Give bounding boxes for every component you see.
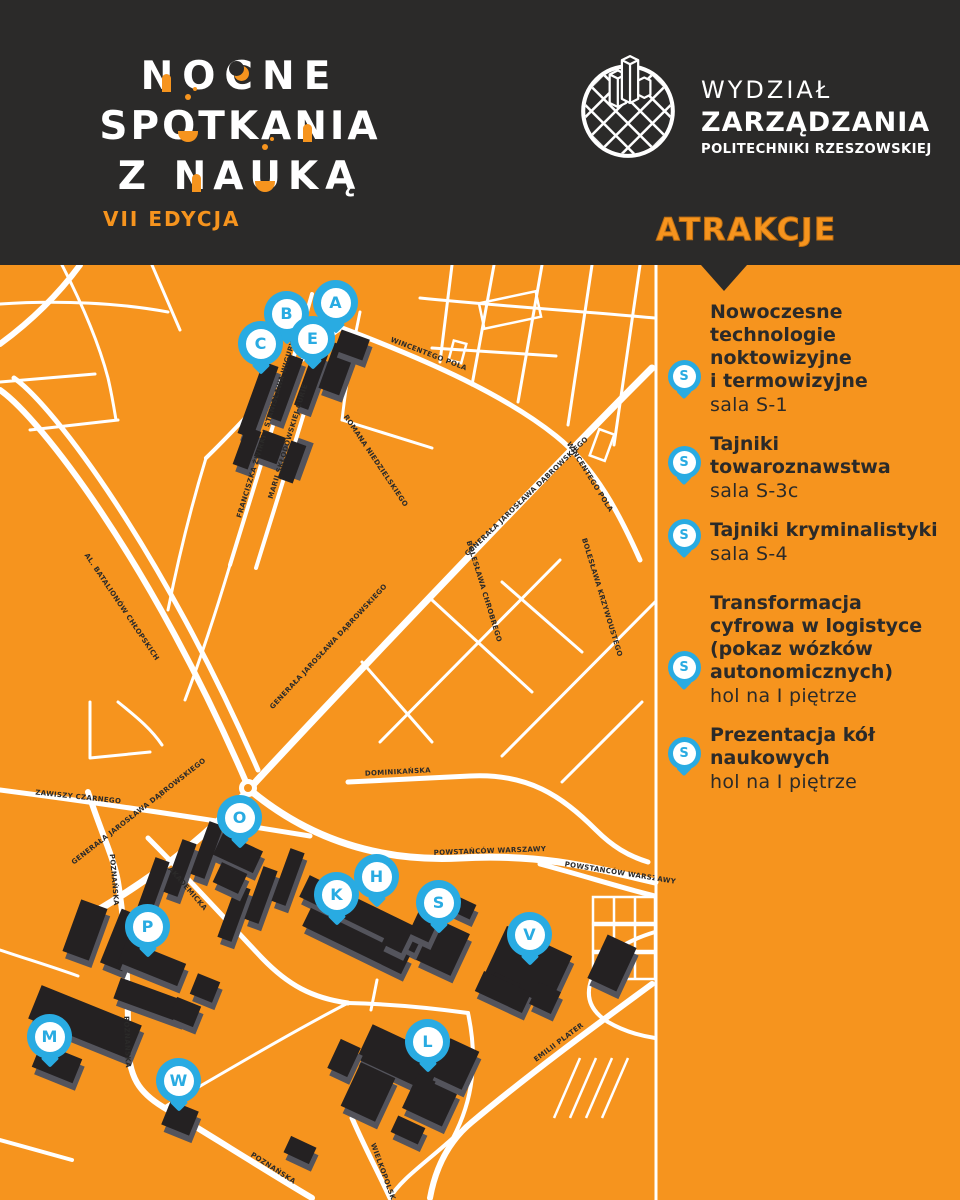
room-pin-letter: S <box>673 451 696 474</box>
room-pin-letter: S <box>673 742 696 765</box>
attraction-room: hol na I piętrze <box>710 770 945 794</box>
event-logo-line2: SPOTKANIA <box>85 102 395 152</box>
map-pin-s[interactable]: S <box>416 880 461 925</box>
faculty-logo: WYDZIAŁ ZARZĄDZANIA POLITECHNIKI RZESZOW… <box>577 50 932 162</box>
map-pin-h[interactable]: H <box>354 854 399 899</box>
map-pin-letter: W <box>164 1066 194 1096</box>
attraction-title: Tajniki kryminalistyki <box>710 519 945 542</box>
map-pin-letter: K <box>322 880 352 910</box>
attraction-item: S Transformacja cyfrowa w logistyce (pok… <box>658 592 960 708</box>
attraction-title: Tajniki towaroznawstwa <box>710 433 945 479</box>
edition-label: VII EDYCJA <box>85 207 395 231</box>
faculty-line2: ZARZĄDZANIA <box>701 107 932 138</box>
map-pin-letter: C <box>246 329 276 359</box>
attractions-heading: ATRAKCJE <box>656 212 837 248</box>
event-logo-line1: NOCNE <box>85 52 395 102</box>
room-pin-icon: S <box>668 519 701 552</box>
faculty-name: WYDZIAŁ ZARZĄDZANIA POLITECHNIKI RZESZOW… <box>701 76 932 157</box>
room-pin-icon: S <box>668 737 701 770</box>
map-pin-letter: P <box>133 912 163 942</box>
room-pin-icon: S <box>668 446 701 479</box>
event-logo-line3: Z NAUKĄ <box>85 152 395 202</box>
room-pin-letter: S <box>673 524 696 547</box>
map-pin-letter: A <box>321 288 351 318</box>
map-pin-w[interactable]: W <box>156 1058 201 1103</box>
map-pin-letter: S <box>424 888 454 918</box>
map-pin-k[interactable]: K <box>314 872 359 917</box>
room-pin-icon: S <box>668 360 701 393</box>
map-pin-l[interactable]: L <box>405 1019 450 1064</box>
attraction-room: sala S-4 <box>710 542 945 566</box>
event-logo: NOCNE SPOTKANIA Z NAUKĄ VII EDYCJA <box>85 52 395 231</box>
map-pin-letter: E <box>298 324 328 354</box>
street-label: POZNAŃSKA <box>122 1016 133 1068</box>
faculty-logo-icon <box>577 50 679 162</box>
map-pin-letter: H <box>362 862 392 892</box>
attraction-item: S Tajniki towaroznawstwa sala S-3c <box>658 433 960 503</box>
map-pin-letter: O <box>225 803 255 833</box>
room-pin-icon: S <box>668 651 701 684</box>
map-pin-v[interactable]: V <box>507 912 552 957</box>
faculty-line3: POLITECHNIKI RZESZOWSKIEJ <box>701 142 932 157</box>
map-pin-c[interactable]: C <box>238 321 283 366</box>
attractions-sidebar: S Nowoczesne technologie noktowizyjne i … <box>658 265 960 1200</box>
heading-pointer <box>701 265 747 291</box>
attraction-title: Nowoczesne technologie noktowizyjne i te… <box>710 301 945 393</box>
map-pin-m[interactable]: M <box>27 1014 72 1059</box>
attraction-item: S Tajniki kryminalistyki sala S-4 <box>658 519 960 576</box>
attraction-item: S Prezentacja kół naukowych hol na I pię… <box>658 724 960 794</box>
map-pin-letter: M <box>35 1022 65 1052</box>
attraction-room: hol na I piętrze <box>710 684 945 708</box>
room-pin-letter: S <box>673 365 696 388</box>
attraction-title: Transformacja cyfrowa w logistyce (pokaz… <box>710 592 945 684</box>
map-pin-letter: L <box>413 1027 443 1057</box>
map-pin-o[interactable]: O <box>217 795 262 840</box>
map-pin-e[interactable]: E <box>290 316 335 361</box>
attraction-item: S Nowoczesne technologie noktowizyjne i … <box>658 301 960 417</box>
map-pin-p[interactable]: P <box>125 904 170 949</box>
faculty-line1: WYDZIAŁ <box>701 76 932 104</box>
map-pin-letter: V <box>515 920 545 950</box>
attraction-title: Prezentacja kół naukowych <box>710 724 945 770</box>
attraction-room: sala S-3c <box>710 479 945 503</box>
attraction-room: sala S-1 <box>710 393 945 417</box>
room-pin-letter: S <box>673 656 696 679</box>
